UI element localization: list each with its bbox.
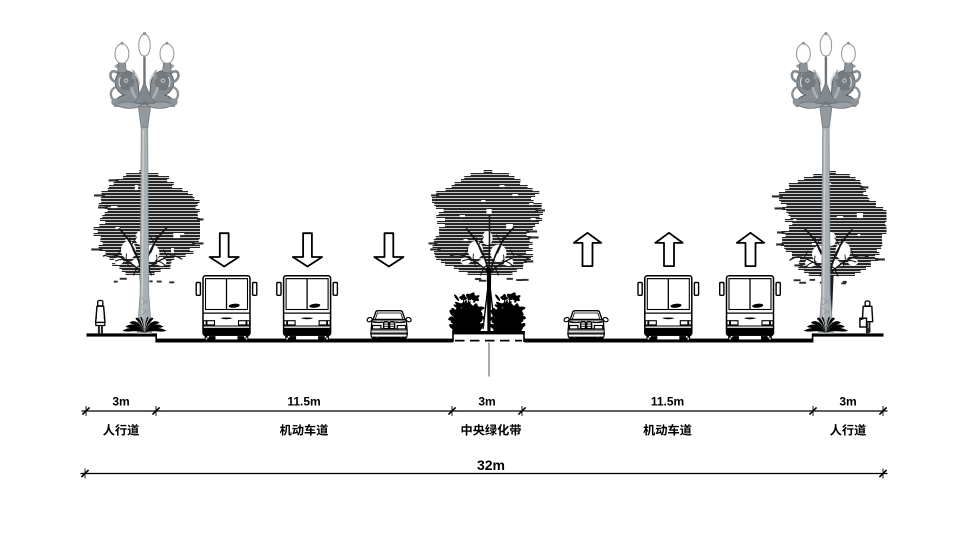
svg-text:11.5m: 11.5m <box>287 395 320 409</box>
svg-text:32m: 32m <box>477 457 505 473</box>
svg-text:11.5m: 11.5m <box>651 395 684 409</box>
svg-text:3m: 3m <box>112 395 129 409</box>
svg-text:3m: 3m <box>839 395 856 409</box>
svg-text:3m: 3m <box>478 395 495 409</box>
